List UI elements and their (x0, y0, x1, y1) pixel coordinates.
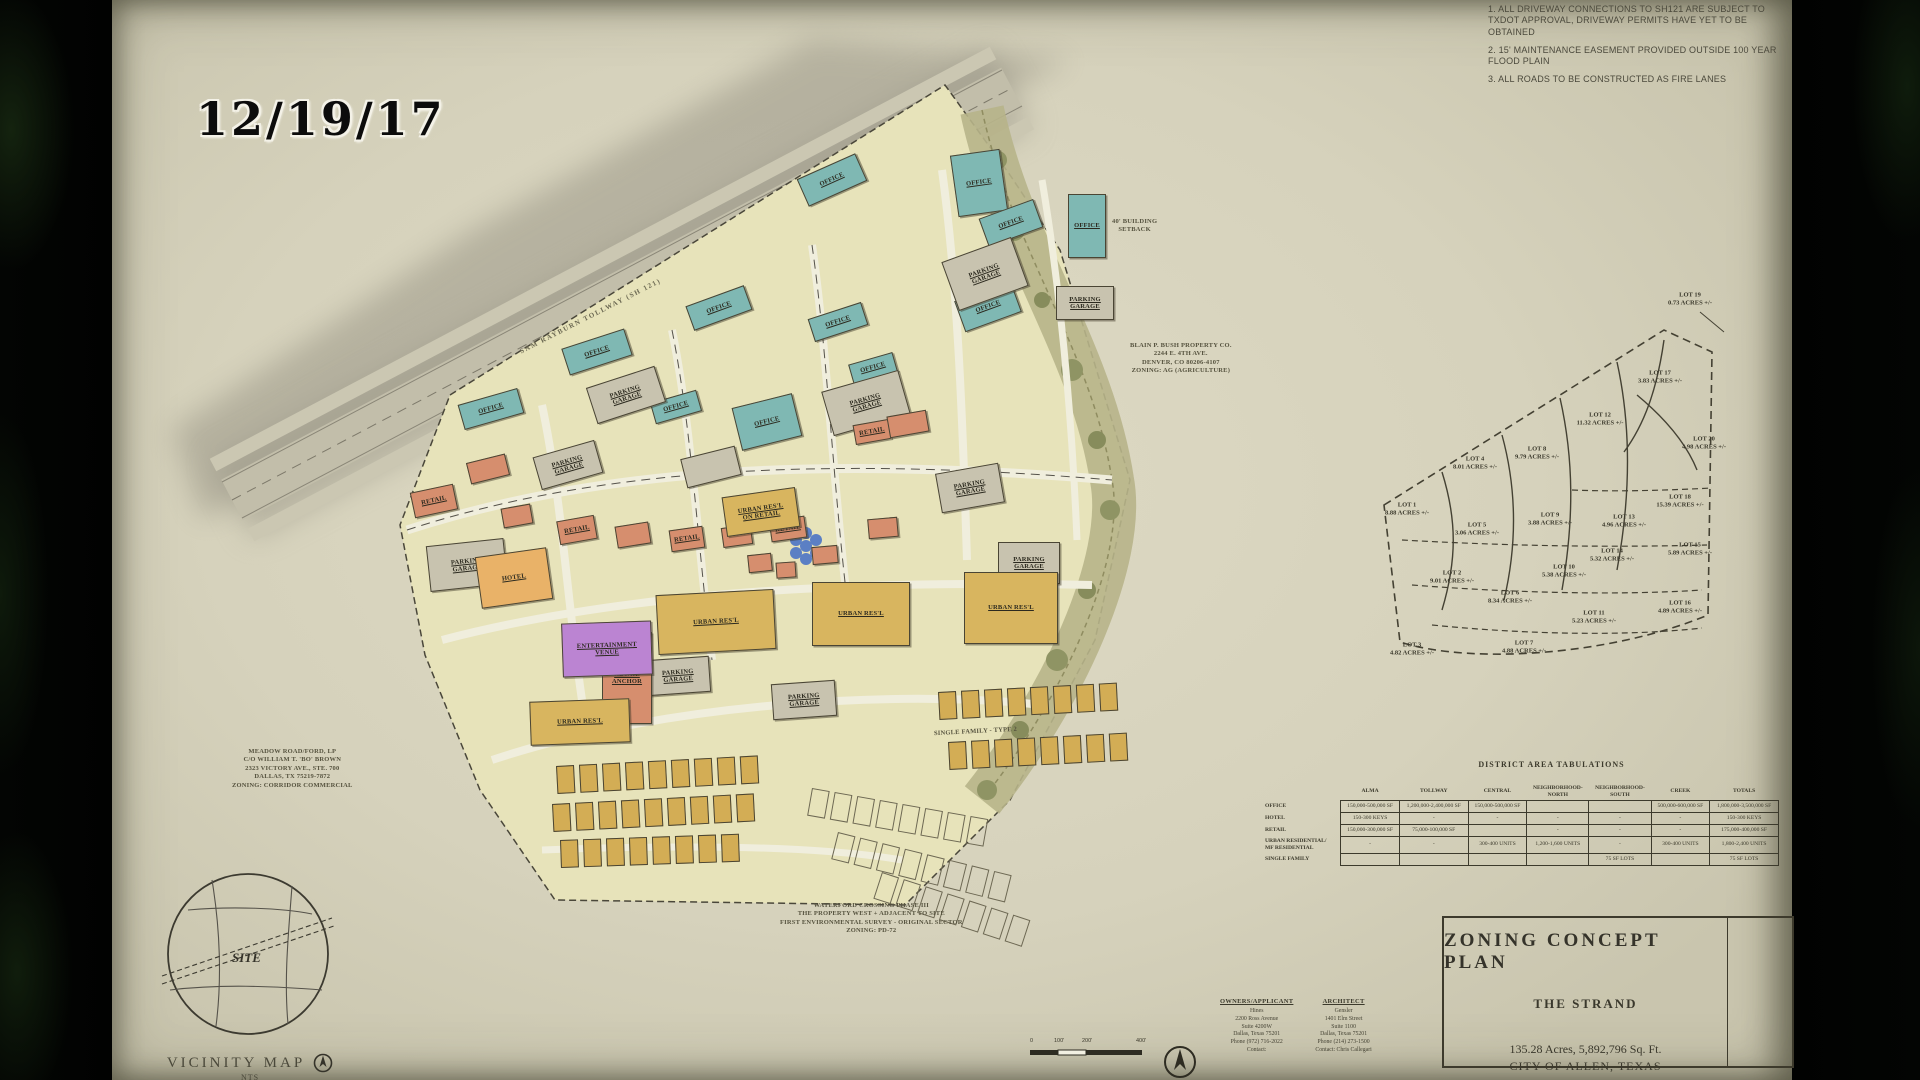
map-building-retail (747, 553, 773, 573)
single-family-lot (629, 837, 648, 866)
table-cell: - (1589, 813, 1651, 825)
table-cell: 150-300 KEYS (1341, 813, 1400, 825)
map-building-retail (775, 561, 796, 578)
future-lot (875, 800, 898, 831)
owners-applicant-block: OWNERS/APPLICANTHines2200 Ross AvenueSui… (1220, 998, 1293, 1055)
future-lot (961, 900, 987, 932)
lot-label: LOT 9 3.88 ACRES +/- (1528, 512, 1572, 529)
lot-label: LOT 13 4.96 ACRES +/- (1602, 514, 1646, 531)
contact-line: Phone (972) 716-2022 (1220, 1039, 1293, 1047)
single-family-lot (984, 689, 1003, 718)
future-lot (943, 812, 966, 843)
table-row: HOTEL150-300 KEYS-----150-300 KEYS (1264, 813, 1779, 825)
single-family-lot (694, 758, 713, 787)
single-family-lot (971, 740, 990, 769)
letterbox-right (1792, 0, 1920, 1080)
map-building-retail (867, 517, 899, 540)
building-label: URBAN RES'L (838, 610, 884, 617)
table-cell: - (1651, 813, 1710, 825)
lot-label: LOT 8 9.79 ACRES +/- (1515, 446, 1559, 463)
lot-label: LOT 18 15.39 ACRES +/- (1656, 494, 1703, 511)
table-cell: - (1527, 824, 1589, 836)
table-column-header: CENTRAL (1468, 783, 1527, 801)
lot-label: LOT 15 5.89 ACRES +/- (1668, 542, 1712, 559)
table-column-header: TOTALS (1710, 783, 1779, 801)
single-family-lot (698, 835, 717, 864)
lot-label: LOT 20 4.98 ACRES +/- (1682, 436, 1726, 453)
single-family-lot (994, 739, 1013, 768)
single-family-lot (736, 793, 755, 822)
table-cell (1589, 801, 1651, 813)
single-family-lot (667, 797, 686, 826)
table-row: URBAN RESIDENTIAL/ MF RESIDENTIAL--300-4… (1264, 836, 1779, 853)
future-lot (920, 808, 943, 839)
map-building-hotel: HOTEL (475, 547, 554, 609)
building-label: OFFICE (825, 314, 852, 329)
building-label: OFFICE (706, 300, 733, 316)
table-row-label: HOTEL (1264, 813, 1341, 825)
annotation-setback-note: 40' BUILDING SETBACK (1112, 218, 1157, 235)
single-family-lot (713, 795, 732, 824)
table-cell (1341, 853, 1400, 865)
tabulations-table: ALMATOLLWAYCENTRALNEIGHBORHOOD- NORTHNEI… (1264, 783, 1779, 866)
single-family-lot (1017, 737, 1036, 766)
single-family-lot (938, 691, 957, 720)
table-column-header: TOLLWAY (1399, 783, 1468, 801)
site-acreage: 135.28 Acres, 5,892,796 Sq. Ft. (1509, 1042, 1661, 1057)
architect-block: ARCHITECTGensler1401 Elm StreetSuite 110… (1315, 998, 1371, 1055)
building-label: URBAN RES'L ON RETAIL (737, 501, 784, 522)
owners-applicant-block-heading: OWNERS/APPLICANT (1220, 998, 1293, 1005)
contact-line: Hines (1220, 1008, 1293, 1016)
lot-label: LOT 7 4.88 ACRES +/- (1502, 640, 1546, 657)
table-cell: 150,000-500,000 SF (1468, 801, 1527, 813)
single-family-lot (644, 798, 663, 827)
building-label: ENTERTAINMENT VENUE (577, 640, 638, 657)
table-cell: 300-400 UNITS (1651, 836, 1710, 853)
future-lot (898, 849, 922, 881)
single-family-lot (961, 690, 980, 719)
table-cell: 75 SF LOTS (1589, 853, 1651, 865)
contact-line: Gensler (1315, 1008, 1371, 1016)
single-family-lot (652, 836, 671, 865)
vicinity-north-arrow-icon (313, 1053, 333, 1073)
lot-label: LOT 4 8.01 ACRES +/- (1453, 456, 1497, 473)
lot-label: LOT 6 8.34 ACRES +/- (1488, 590, 1532, 607)
annotation-bush-property: BLAIN P. BUSH PROPERTY CO. 2244 E. 4TH A… (1130, 342, 1232, 376)
table-cell: 500,000-600,000 SF (1651, 801, 1710, 813)
vicinity-map-title: VICINITY MAP (167, 1055, 305, 1072)
building-label: PARKING GARAGE (551, 453, 586, 476)
lot-label: LOT 2 9.01 ACRES +/- (1430, 570, 1474, 587)
project-name: THE STRAND (1533, 996, 1637, 1012)
table-row: OFFICE150,000-500,000 SF1,200,000-2,400,… (1264, 801, 1779, 813)
single-family-lot (1086, 734, 1105, 763)
table-cell: 300-400 UNITS (1468, 836, 1527, 853)
table-cell (1527, 801, 1589, 813)
table-cell: 150,000-300,000 SF (1341, 824, 1400, 836)
contact-line: 1401 Elm Street (1315, 1016, 1371, 1024)
contact-line: Suite 4200W (1220, 1024, 1293, 1032)
map-building-urban: URBAN RES'L (964, 572, 1058, 644)
single-family-lot (598, 801, 617, 830)
map-building-retail (811, 545, 838, 565)
contact-line: Contact: Chris Callegari (1315, 1047, 1371, 1055)
building-label: RETAIL (421, 495, 448, 508)
table-column-header: CREEK (1651, 783, 1710, 801)
single-family-lot (740, 755, 759, 784)
table-column-header: ALMA (1341, 783, 1400, 801)
building-label: OFFICE (819, 171, 846, 188)
single-family-lot (1109, 733, 1128, 762)
city-name: CITY OF ALLEN, TEXAS (1510, 1059, 1662, 1074)
future-lot (898, 804, 921, 835)
table-cell (1527, 853, 1589, 865)
building-label: PARKING GARAGE (953, 478, 987, 498)
scale-bar-ticks: 0100'200'400' (1030, 1038, 1230, 1046)
future-lot (852, 796, 875, 827)
table-row-label: OFFICE (1264, 801, 1341, 813)
future-lot (943, 860, 967, 892)
map-building-urban: URBAN RES'L (529, 698, 630, 745)
map-building-urban: URBAN RES'L (656, 589, 777, 655)
zoning-plan-sheet: 12/19/17 1. ALL DRIVEWAY CONNECTIONS TO … (112, 0, 1792, 1080)
building-label: PARKING GARAGE (968, 262, 1003, 287)
title-block: ZONING CONCEPT PLAN THE STRAND 135.28 Ac… (1442, 916, 1794, 1068)
single-family-lot (1063, 735, 1082, 764)
annotation-meadow-property: MEADOW ROAD/FORD, LP C/O WILLIAM T. 'BO'… (232, 748, 353, 790)
scale-tick-label: 200' (1082, 1038, 1092, 1044)
table-cell: 1,200-1,600 UNITS (1527, 836, 1589, 853)
scale-tick-label: 400' (1136, 1038, 1146, 1044)
building-label: OFFICE (754, 415, 781, 428)
plan-type-title: ZONING CONCEPT PLAN (1444, 930, 1727, 974)
single-family-lot (606, 838, 625, 867)
table-cell: - (1589, 836, 1651, 853)
table-cell: - (1651, 824, 1710, 836)
single-family-lot (575, 802, 594, 831)
contact-line: 2200 Ross Avenue (1220, 1016, 1293, 1024)
lot-label: LOT 1 8.88 ACRES +/- (1385, 502, 1429, 519)
map-building-office: OFFICE (950, 149, 1008, 217)
contact-line: Suite 1100 (1315, 1024, 1371, 1032)
single-family-lot (1076, 684, 1095, 713)
building-label: OFFICE (478, 402, 505, 416)
future-lot (920, 854, 944, 886)
single-family-lot (648, 760, 667, 789)
vicinity-map-drawing: SITE (140, 868, 360, 1046)
lot-label: LOT 3 4.82 ACRES +/- (1390, 642, 1434, 659)
lot-label: LOT 16 4.89 ACRES +/- (1658, 600, 1702, 617)
table-row: SINGLE FAMILY75 SF LOTS75 SF LOTS (1264, 853, 1779, 865)
single-family-lot (948, 741, 967, 770)
single-family-lot (690, 796, 709, 825)
map-building-garage: PARKING GARAGE (1056, 286, 1114, 320)
table-cell (1399, 853, 1468, 865)
building-label: PARKING GARAGE (609, 383, 644, 407)
scale-bar-drawing (1030, 1046, 1230, 1080)
date-stamp: 12/19/17 (196, 92, 446, 146)
table-cell: 150-300 KEYS (1710, 813, 1779, 825)
table-row-label: URBAN RESIDENTIAL/ MF RESIDENTIAL (1264, 836, 1341, 853)
map-building-garage: PARKING GARAGE (645, 656, 711, 696)
single-family-lot (721, 834, 740, 863)
table-row-label: RETAIL (1264, 824, 1341, 836)
table-title: DISTRICT AREA TABULATIONS (1324, 760, 1779, 769)
contact-blocks: OWNERS/APPLICANTHines2200 Ross AvenueSui… (1220, 998, 1372, 1055)
table-cell: 1,800-2,400 UNITS (1710, 836, 1779, 853)
scale-bar: 0100'200'400' 1"=200.0' (1030, 1038, 1230, 1080)
table-row-label: SINGLE FAMILY (1264, 853, 1341, 865)
single-family-lot (1007, 687, 1026, 716)
building-label: PARKING GARAGE (1013, 556, 1045, 571)
single-family-lot (552, 803, 571, 832)
table-cell: - (1589, 824, 1651, 836)
map-building-office: OFFICE (1068, 194, 1106, 258)
single-family-lot (602, 763, 621, 792)
map-building-urban: URBAN RES'L (812, 582, 910, 646)
future-lot (807, 788, 830, 819)
single-family-lot (583, 839, 602, 868)
vicinity-site-label: SITE (232, 950, 261, 965)
building-label: PARKING GARAGE (849, 391, 884, 414)
building-label: PARKING GARAGE (1069, 296, 1101, 311)
building-label: OFFICE (860, 361, 887, 375)
building-label: RETAIL (674, 534, 700, 545)
lot-label: LOT 12 11.32 ACRES +/- (1577, 412, 1624, 429)
note-item: 3. ALL ROADS TO BE CONSTRUCTED AS FIRE L… (1488, 74, 1788, 85)
map-building-garage: PARKING GARAGE (771, 680, 837, 720)
table-cell: - (1399, 813, 1468, 825)
building-label: RETAIL (859, 426, 886, 438)
lot-label: LOT 5 3.06 ACRES +/- (1455, 522, 1499, 539)
table-column-header: NEIGHBORHOOD- SOUTH (1589, 783, 1651, 801)
building-label: RETAIL (564, 524, 591, 536)
table-column-header (1264, 783, 1341, 801)
scale-tick-label: 100' (1054, 1038, 1064, 1044)
map-building-retail: RETAIL (669, 526, 706, 553)
video-frame: 12/19/17 1. ALL DRIVEWAY CONNECTIONS TO … (0, 0, 1920, 1080)
building-label: URBAN RES'L (988, 604, 1034, 611)
title-block-side-column (1727, 918, 1792, 1066)
building-label: PARKING GARAGE (662, 667, 695, 684)
lot-label: LOT 17 3.83 ACRES +/- (1638, 370, 1682, 387)
table-cell: - (1341, 836, 1400, 853)
single-family-lot (560, 839, 579, 868)
map-building-venue: ENTERTAINMENT VENUE (561, 620, 653, 677)
district-area-tabulations: DISTRICT AREA TABULATIONS ALMATOLLWAYCEN… (1264, 760, 1779, 866)
lot-label: LOT 11 5.23 ACRES +/- (1572, 610, 1616, 627)
single-family-lot (621, 799, 640, 828)
lot-label: LOT 19 0.73 ACRES +/- (1668, 292, 1712, 309)
lot-label: LOT 14 5.32 ACRES +/- (1590, 548, 1634, 565)
table-column-header: NEIGHBORHOOD- NORTH (1527, 783, 1589, 801)
single-family-lot (1040, 736, 1059, 765)
building-label: HOTEL (502, 573, 527, 584)
table-cell (1468, 824, 1527, 836)
single-family-lot (579, 764, 598, 793)
annotation-waterford-note: WATERFORD CROSSING PHASE III THE PROPERT… (780, 902, 963, 936)
single-family-lot (1099, 683, 1118, 712)
table-cell: 1,800,000-3,500,000 SF (1710, 801, 1779, 813)
letterbox-left (0, 0, 112, 1080)
building-label: PARKING GARAGE (788, 691, 821, 708)
building-label: URBAN RES'L (557, 717, 603, 726)
table-row: RETAIL150,000-300,000 SF75,000-100,000 S… (1264, 824, 1779, 836)
building-label: OFFICE (998, 215, 1025, 231)
building-label: OFFICE (966, 178, 993, 189)
table-cell: - (1399, 836, 1468, 853)
single-family-lot (717, 757, 736, 786)
note-item: 2. 15' MAINTENANCE EASEMENT PROVIDED OUT… (1488, 45, 1788, 68)
building-label: OFFICE (1074, 222, 1100, 229)
future-lot (854, 838, 878, 870)
table-cell (1468, 853, 1527, 865)
table-cell: 150,000-500,000 SF (1341, 801, 1400, 813)
vicinity-scale-note: NTS (140, 1073, 360, 1080)
single-family-lot (1053, 685, 1072, 714)
building-label: URBAN RES'L (693, 617, 739, 627)
single-family-lot (556, 765, 575, 794)
future-lot (830, 792, 853, 823)
single-family-lot (1030, 686, 1049, 715)
architect-block-heading: ARCHITECT (1315, 998, 1371, 1005)
contact-line: Contact: (1220, 1047, 1293, 1055)
future-lot (965, 865, 989, 897)
table-cell: 75,000-100,000 SF (1399, 824, 1468, 836)
table-cell: 75 SF LOTS (1710, 853, 1779, 865)
vicinity-map: SITE VICINITY MAP NTS (140, 868, 360, 1080)
future-lot (876, 843, 900, 875)
contact-line: Phone (214) 273-1500 (1315, 1039, 1371, 1047)
single-family-lot (675, 835, 694, 864)
plan-notes: 1. ALL DRIVEWAY CONNECTIONS TO SH121 ARE… (1488, 4, 1788, 93)
single-family-lot (625, 761, 644, 790)
table-cell (1651, 853, 1710, 865)
building-label: OFFICE (584, 344, 611, 359)
building-label: OFFICE (663, 400, 690, 414)
single-family-lot (671, 759, 690, 788)
lot-label: LOT 10 5.38 ACRES +/- (1542, 564, 1586, 581)
scale-tick-label: 0 (1030, 1038, 1033, 1044)
future-lot (983, 908, 1009, 940)
table-cell: 175,000-400,000 SF (1710, 824, 1779, 836)
note-item: 1. ALL DRIVEWAY CONNECTIONS TO SH121 ARE… (1488, 4, 1788, 38)
table-cell: 1,200,000-2,400,000 SF (1399, 801, 1468, 813)
table-cell: - (1468, 813, 1527, 825)
table-cell: - (1527, 813, 1589, 825)
